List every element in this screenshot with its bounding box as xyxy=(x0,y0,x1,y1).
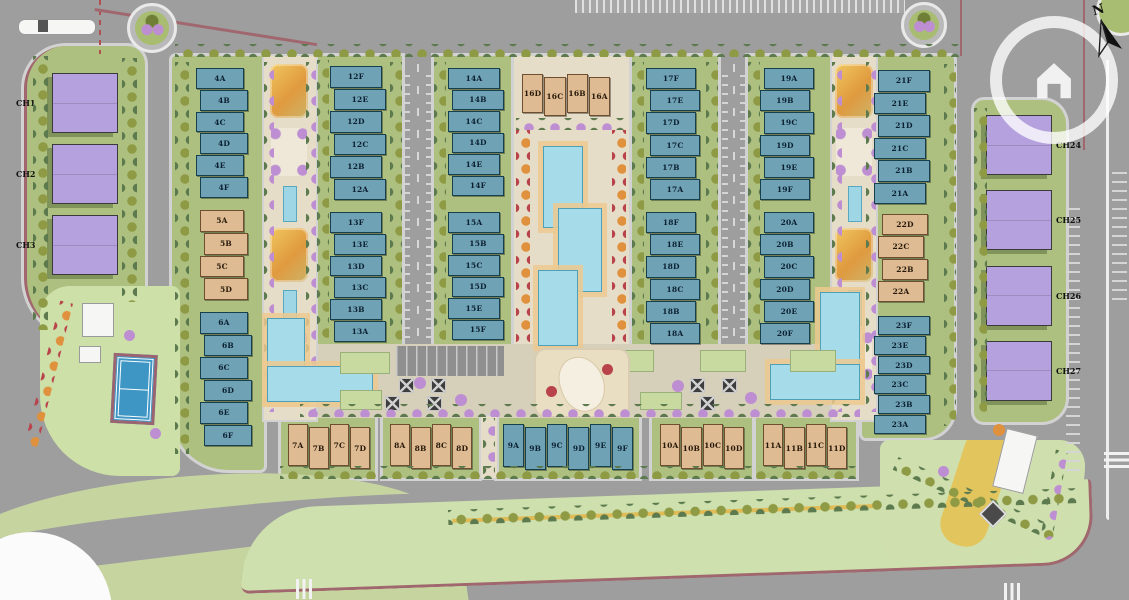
plaza xyxy=(271,128,307,176)
building-stack-9: 9A9B9C9D9E9F xyxy=(503,424,633,470)
building-unit: 12A xyxy=(334,179,386,201)
purple-tree xyxy=(745,392,757,404)
service-building xyxy=(79,346,101,363)
purple-tree xyxy=(150,428,161,439)
building-unit: 5D xyxy=(204,278,248,300)
building-unit: 8C xyxy=(432,424,452,466)
garden-plot xyxy=(835,64,873,118)
building-unit: 19E xyxy=(764,157,814,178)
bus-shape xyxy=(18,19,96,35)
tree-row xyxy=(483,418,495,476)
roundabout-island xyxy=(135,11,169,45)
roundabout-island xyxy=(909,10,939,40)
chalet-row: CH26 xyxy=(986,267,1098,325)
building-unit: 13D xyxy=(330,256,382,277)
building-unit: 12D xyxy=(330,111,382,133)
building-unit: 21D xyxy=(878,115,930,137)
building-unit: 18D xyxy=(646,256,696,277)
pergola xyxy=(700,396,715,411)
building-unit: 13C xyxy=(334,277,386,298)
building-unit: 20F xyxy=(760,323,810,344)
building-unit: 8B xyxy=(411,427,431,469)
building-unit: 6E xyxy=(200,402,248,424)
chalet-building xyxy=(986,341,1052,401)
building-unit: 16B xyxy=(567,74,588,113)
building-unit: 9B xyxy=(525,427,546,470)
compass-needle-icon xyxy=(1084,13,1129,67)
plaza xyxy=(836,128,872,176)
building-unit: 18F xyxy=(646,212,696,233)
tennis-court xyxy=(110,353,158,425)
building-unit: 17F xyxy=(646,68,696,89)
building-unit: 16A xyxy=(589,77,610,116)
pergola xyxy=(722,378,737,393)
building-unit: 17B xyxy=(646,157,696,178)
building-unit: 23C xyxy=(874,375,926,394)
building-unit: 20A xyxy=(764,212,814,233)
building-stack-12: 12F12E12D12C12B12A xyxy=(330,66,386,200)
purple-tree xyxy=(672,380,684,392)
building-stack-18: 18F18E18D18C18B18A xyxy=(646,212,700,344)
lawn-patch xyxy=(640,392,682,410)
building-unit: 10C xyxy=(703,424,723,466)
building-unit: 20D xyxy=(760,279,810,300)
building-unit: 21E xyxy=(874,93,926,115)
purple-tree xyxy=(124,330,135,341)
building-stack-10: 10A10B10C10D xyxy=(660,424,744,469)
building-unit: 7C xyxy=(330,424,350,466)
playground xyxy=(536,350,628,416)
chalet-row: CH25 xyxy=(986,191,1098,249)
garden-plot xyxy=(270,228,308,282)
building-unit: 15A xyxy=(448,212,500,233)
bus-window xyxy=(38,20,48,32)
building-unit: 9A xyxy=(503,424,524,467)
building-unit: 12E xyxy=(334,89,386,111)
building-unit: 19C xyxy=(764,112,814,133)
chalet-building xyxy=(52,73,118,133)
building-unit: 11D xyxy=(827,427,847,469)
chalet-building xyxy=(52,215,118,275)
building-unit: 6B xyxy=(204,335,252,357)
building-unit: 5A xyxy=(200,210,244,232)
chalet-row: CH2 xyxy=(16,145,120,203)
building-unit: 14D xyxy=(452,133,504,154)
crosswalk xyxy=(1104,452,1129,470)
crosswalk xyxy=(296,579,312,599)
lawn-patch xyxy=(340,390,382,410)
parking-stalls xyxy=(426,70,432,338)
central-pool-segment xyxy=(538,270,578,346)
building-unit: 21C xyxy=(874,138,926,160)
building-unit: 8D xyxy=(452,427,472,469)
building-stack-23: 23F23E23D23C23B23A xyxy=(874,316,930,434)
building-unit: 18B xyxy=(646,301,696,322)
building-unit: 11A xyxy=(763,424,783,466)
building-stack-13: 13F13E13D13C13B13A xyxy=(330,212,386,342)
building-unit: 10B xyxy=(681,427,701,469)
building-unit: 19D xyxy=(760,135,810,156)
building-stack-5: 5A5B5C5D xyxy=(200,210,248,300)
building-unit: 14F xyxy=(452,176,504,197)
building-unit: 13F xyxy=(330,212,382,233)
chalet-label: CH3 xyxy=(16,240,52,250)
orange-tree xyxy=(993,424,1005,436)
building-unit: 18C xyxy=(650,279,700,300)
building-unit: 23B xyxy=(878,395,930,414)
building-unit: 4E xyxy=(196,155,244,176)
pergola xyxy=(385,396,400,411)
parking-lot xyxy=(396,346,504,376)
building-unit: 21F xyxy=(878,70,930,92)
building-unit: 21B xyxy=(878,160,930,182)
building-unit: 20E xyxy=(764,301,814,322)
building-unit: 7B xyxy=(309,427,329,469)
building-unit: 5B xyxy=(204,233,248,255)
building-unit: 11C xyxy=(806,424,826,466)
crosswalk xyxy=(1004,583,1020,600)
lawn-patch xyxy=(700,350,746,372)
pergola xyxy=(690,378,705,393)
building-unit: 16D xyxy=(522,74,543,113)
chalet-row: CH3 xyxy=(16,216,120,274)
building-unit: 4A xyxy=(196,68,244,89)
lane-marking xyxy=(733,64,735,340)
building-unit: 7A xyxy=(288,424,308,466)
building-unit: 23E xyxy=(874,336,926,355)
chalet-building xyxy=(986,190,1052,250)
building-unit: 22A xyxy=(878,281,924,302)
building-stack-7: 7A7B7C7D xyxy=(288,424,370,469)
building-unit: 4D xyxy=(200,133,248,154)
building-unit: 22C xyxy=(878,236,924,257)
building-stack-4: 4A4B4C4D4E4F xyxy=(196,68,248,198)
building-stack-19: 19A19B19C19D19E19F xyxy=(760,68,814,200)
building-unit: 4F xyxy=(200,177,248,198)
chalet-label: CH27 xyxy=(1052,366,1096,376)
road-outline xyxy=(1106,60,1109,520)
building-unit: 14E xyxy=(448,154,500,175)
building-unit: 13A xyxy=(334,321,386,342)
building-stack-21: 21F21E21D21C21B21A xyxy=(874,70,930,204)
building-stack-22: 22D22C22B22A xyxy=(878,214,928,302)
parking-stalls xyxy=(740,70,746,338)
building-unit: 18A xyxy=(650,323,700,344)
chalet-building xyxy=(52,144,118,204)
building-unit: 19F xyxy=(760,179,810,200)
building-unit: 17D xyxy=(646,112,696,133)
building-stack-14: 14A14B14C14D14E14F xyxy=(448,68,504,196)
garden-plot xyxy=(835,228,873,282)
chalet-row: CH1 xyxy=(16,74,120,132)
building-unit: 21A xyxy=(874,183,926,205)
building-unit: 17C xyxy=(650,135,700,156)
building-unit: 7D xyxy=(350,427,370,469)
building-unit: 15F xyxy=(452,320,504,341)
building-unit: 10A xyxy=(660,424,680,466)
building-stack-15: 15A15B15C15D15E15F xyxy=(448,212,504,340)
master-plan-map: CH1 CH2 CH3 4A4B4C4D4E4F 5A5B5C5D 6A6B6C… xyxy=(0,0,1129,600)
building-unit: 4C xyxy=(196,112,244,133)
building-unit: 18E xyxy=(650,234,700,255)
chalet-label: CH25 xyxy=(1052,215,1096,225)
red-shrub xyxy=(546,386,557,397)
path-strip xyxy=(481,416,497,478)
building-unit: 17E xyxy=(650,90,700,111)
lane-marking xyxy=(417,64,419,340)
building-unit: 15E xyxy=(448,298,500,319)
building-unit: 16C xyxy=(544,77,565,116)
building-unit: 20B xyxy=(760,234,810,255)
building-unit: 12C xyxy=(334,134,386,156)
building-unit: 9D xyxy=(568,427,589,470)
building-unit: 6D xyxy=(204,380,252,402)
mini-pool xyxy=(848,186,862,222)
building-unit: 9E xyxy=(590,424,611,467)
building-unit: 5C xyxy=(200,256,244,278)
building-unit: 23F xyxy=(878,316,930,335)
mini-pool xyxy=(283,186,297,222)
building-unit: 11B xyxy=(784,427,804,469)
parking-stalls xyxy=(1112,170,1127,300)
pergola xyxy=(431,378,446,393)
red-shrub xyxy=(602,364,613,375)
pergola xyxy=(399,378,414,393)
building-unit: 14C xyxy=(448,111,500,132)
chalet-label: CH1 xyxy=(16,98,52,108)
parking-strip-top xyxy=(575,0,905,13)
building-stack-6: 6A6B6C6D6E6F xyxy=(200,312,252,446)
building-unit: 15C xyxy=(448,255,500,276)
garden-plot xyxy=(270,64,308,118)
pergola xyxy=(427,396,442,411)
building-unit: 9C xyxy=(547,424,568,467)
chalet-label: CH2 xyxy=(16,169,52,179)
building-unit: 12B xyxy=(330,156,382,178)
playground-sand xyxy=(552,351,611,418)
building-stack-17: 17F17E17D17C17B17A xyxy=(646,68,700,200)
building-unit: 22B xyxy=(882,259,928,280)
roundabout-east xyxy=(901,2,947,48)
building-unit: 23D xyxy=(878,356,930,375)
purple-tree xyxy=(414,377,426,389)
building-unit: 8A xyxy=(390,424,410,466)
building-stack-20: 20A20B20C20D20E20F xyxy=(760,212,814,344)
chalet-label: CH26 xyxy=(1052,291,1096,301)
building-unit: 6A xyxy=(200,312,248,334)
roundabout-west xyxy=(127,3,177,53)
building-stack-16: 16D16C16B16A xyxy=(522,74,610,116)
chalet-group-right: CH24 CH25 CH26 CH27 xyxy=(986,116,1098,400)
building-unit: 20C xyxy=(764,256,814,277)
purple-tree xyxy=(455,394,467,406)
chalet-building xyxy=(986,266,1052,326)
building-unit: 6C xyxy=(200,357,248,379)
chalet-row: CH27 xyxy=(986,342,1098,400)
building-unit: 9F xyxy=(612,427,633,470)
building-unit: 6F xyxy=(204,425,252,447)
building-stack-11: 11A11B11C11D xyxy=(763,424,847,469)
parking-stalls xyxy=(722,70,728,338)
building-unit: 13B xyxy=(330,299,382,320)
building-unit: 23A xyxy=(874,415,926,434)
building-unit: 19B xyxy=(760,90,810,111)
building-unit: 12F xyxy=(330,66,382,88)
parking-stalls xyxy=(404,70,410,338)
building-unit: 17A xyxy=(650,179,700,200)
building-unit: 14B xyxy=(452,90,504,111)
lawn-patch xyxy=(340,352,390,374)
road-edge-line-top xyxy=(960,0,962,56)
building-unit: 22D xyxy=(882,214,928,235)
building-unit: 15D xyxy=(452,277,504,298)
building-unit: 15B xyxy=(452,234,504,255)
lawn-patch xyxy=(790,350,836,372)
chalet-group-left: CH1 CH2 CH3 xyxy=(16,74,120,274)
purple-tree xyxy=(938,466,949,477)
building-unit: 14A xyxy=(448,68,500,89)
building-stack-8: 8A8B8C8D xyxy=(390,424,472,469)
clubhouse xyxy=(82,303,114,337)
building-unit: 10D xyxy=(724,427,744,469)
building-unit: 4B xyxy=(200,90,248,111)
building-unit: 13E xyxy=(334,234,386,255)
building-unit: 19A xyxy=(764,68,814,89)
watermark-house-icon xyxy=(1026,54,1082,106)
